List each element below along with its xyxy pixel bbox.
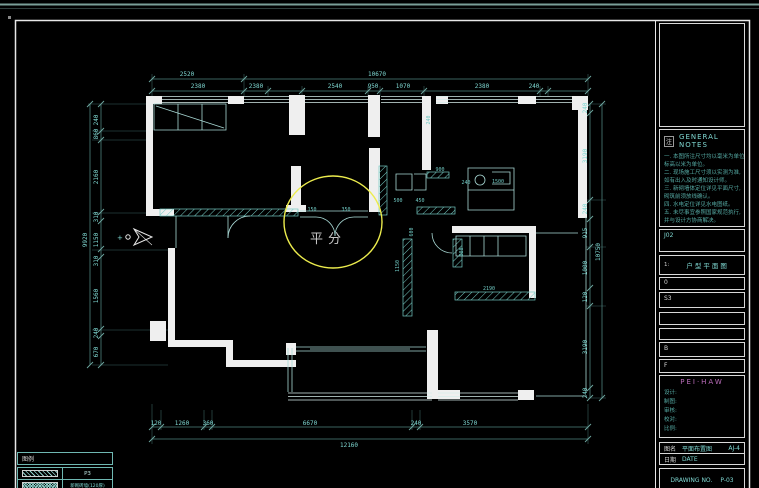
dim-text: 1150 — [395, 260, 401, 272]
titleblock-empty-box-1 — [659, 312, 745, 325]
legend-row: 新砌砖墙(120厚) — [18, 479, 112, 488]
text-line: 二. 现场施工尺寸须以实测为准, — [664, 169, 740, 177]
dim-text: 1070 — [396, 83, 411, 90]
sheet-label: 图名 — [664, 444, 676, 453]
b-value: B — [664, 345, 668, 352]
dim-text: 680 — [459, 247, 465, 256]
dim-text: 2380 — [475, 83, 490, 90]
dim-text: 6670 — [303, 420, 318, 427]
dim-text: 120 — [151, 420, 162, 427]
scale-prefix: 1: — [664, 262, 669, 268]
dim-text: 3570 — [463, 420, 478, 427]
dim-text: 9920 — [82, 232, 89, 247]
text-line: 设计: — [664, 389, 740, 398]
entry-arrow-marker: + — [117, 229, 152, 245]
dim-text: 240 — [582, 387, 589, 398]
annotation-text: 平分 — [310, 232, 346, 247]
cad-canvas: 2520106702380238025409501070238024024086… — [0, 0, 759, 488]
dim-text: 860 — [93, 128, 100, 139]
dim-text: 1000 — [582, 260, 589, 275]
dim-text: 2520 — [180, 71, 195, 78]
dim-text: 3190 — [582, 339, 589, 354]
date-value: DATE — [682, 456, 698, 463]
titleblock-b-box: B — [659, 342, 745, 357]
dim-text: 360 — [203, 420, 214, 427]
dim-text: 240 — [582, 102, 589, 113]
drawing-no-label: DRAWING NO. — [670, 477, 712, 484]
titleblock-drawing-no-box: DRAWING NO. P-03 — [659, 468, 745, 488]
dim-text: 900 — [435, 167, 444, 173]
drawing-title: 户型平面图 — [686, 260, 729, 270]
f-value: F — [664, 362, 667, 369]
dim-text: 240 — [426, 115, 432, 124]
floor-plan-drawing: 2520106702380238025409501070238024024086… — [0, 0, 759, 488]
dim-text: 1150 — [93, 232, 100, 247]
dim-text: 10750 — [595, 243, 602, 261]
drawing-no-value: P-03 — [720, 477, 733, 484]
notes-tag: 注 — [664, 136, 674, 147]
text-line: 校对: — [664, 416, 740, 425]
dim-text: 915 — [582, 227, 589, 238]
dim-text: 2380 — [249, 83, 264, 90]
legend-row: P3 — [18, 468, 112, 479]
titleblock-firm-box: PEI·HAW 设计:制图:审核:校对:比例: — [659, 375, 745, 438]
crosshair-dot — [8, 16, 11, 19]
legend-row-label: 新砌砖墙(120厚) — [63, 483, 112, 488]
dimension-chains — [87, 76, 605, 442]
dim-text: 500 — [393, 198, 402, 204]
titleblock-general-notes: 注 GENERAL NOTES 一. 本图所注尺寸均以毫米为单位, 标高以米为单… — [659, 129, 745, 227]
titleblock-scale-box: 1: 户型平面图 — [659, 255, 745, 275]
titleblock-code-box: J02 — [659, 229, 745, 252]
dim-text: 12160 — [340, 442, 358, 449]
dim-text: 310 — [93, 211, 100, 222]
text-line: 比例: — [664, 425, 740, 434]
code-j02: J02 — [664, 232, 673, 239]
titleblock-empty-panel — [659, 23, 745, 127]
window-symbols — [162, 97, 572, 401]
titleblock-f-box: F — [659, 359, 745, 373]
dim-text: 450 — [415, 198, 424, 204]
walls — [146, 95, 588, 400]
text-line: 并与设计方协商解决。 — [664, 217, 740, 225]
text-line: 审核: — [664, 407, 740, 416]
dim-text: 350 — [341, 207, 350, 213]
titleblock-rev-box: 0 — [659, 277, 745, 290]
dim-text: 600 — [409, 227, 415, 236]
interior-lines-and-doors — [154, 104, 586, 396]
dim-text: 10670 — [368, 71, 386, 78]
dim-text: 2380 — [191, 83, 206, 90]
text-line: 标高以米为单位。 — [664, 161, 740, 169]
dim-text: 240 — [93, 327, 100, 338]
legend: 图例 P3 新砌砖墙(120厚) — [17, 452, 113, 488]
dim-text: 2160 — [93, 169, 100, 184]
firm-lines: 设计:制图:审核:校对:比例: — [664, 389, 740, 434]
dim-text: 240 — [411, 420, 422, 427]
text-line: 制图: — [664, 398, 740, 407]
dimension-extension-lines — [88, 74, 606, 444]
legend-title: 图例 — [22, 454, 34, 463]
dim-text: 150 — [307, 207, 316, 213]
text-line: 如有出入及时通知设计师。 — [664, 177, 740, 185]
legend-swatch-dense-hatch — [22, 482, 58, 488]
dim-text: 670 — [93, 346, 100, 357]
sheet-value: 平面布置图 — [682, 444, 712, 453]
dim-text: 1260 — [175, 420, 190, 427]
firm-name: PEI·HAW — [664, 378, 740, 386]
dim-text: 1560 — [93, 288, 100, 303]
text-line: 三. 新砌墙体定位详见平面尺寸, — [664, 185, 740, 193]
revision-cloud-annotation: 平分 — [284, 176, 382, 268]
text-line: 一. 本图所注尺寸均以毫米为单位, — [664, 153, 740, 161]
yellow-circle — [284, 176, 382, 268]
legend-swatch-diagonal-hatch — [22, 470, 58, 477]
titleblock-meta-box: 图名 平面布置图 AJ-4 日期 DATE — [659, 442, 745, 465]
text-line: 四. 水电定位详见水电图纸。 — [664, 201, 740, 209]
new-wall-hatching — [160, 166, 535, 316]
sheet-code: AJ-4 — [728, 445, 740, 452]
s3-value: S3 — [664, 295, 672, 302]
rev-value: 0 — [664, 279, 668, 286]
dim-text: 240 — [529, 83, 540, 90]
dim-text: 240 — [582, 203, 589, 214]
text-line: 砌筑前须放线确认。 — [664, 193, 740, 201]
dim-text: 120 — [582, 291, 589, 302]
titleblock-s3-box: S3 — [659, 292, 745, 308]
dim-text: 240 — [461, 180, 470, 186]
dim-text: 3190 — [582, 148, 589, 163]
dim-text: 2190 — [483, 286, 495, 292]
notes-title: GENERAL NOTES — [679, 133, 740, 149]
titleblock-empty-box-2 — [659, 328, 745, 340]
dim-text: 950 — [368, 83, 379, 90]
text-line: 五. 未尽事宜参照国家规范执行, — [664, 209, 740, 217]
notes-lines: 一. 本图所注尺寸均以毫米为单位, 标高以米为单位。二. 现场施工尺寸须以实测为… — [664, 153, 740, 225]
date-label: 日期 — [664, 455, 676, 464]
legend-row-label: P3 — [63, 471, 112, 477]
dim-text: 310 — [93, 255, 100, 266]
plus-glyph: + — [117, 234, 123, 242]
dim-text: 1500 — [492, 179, 504, 185]
dim-text: 240 — [93, 114, 100, 125]
dim-text: 2540 — [328, 83, 343, 90]
